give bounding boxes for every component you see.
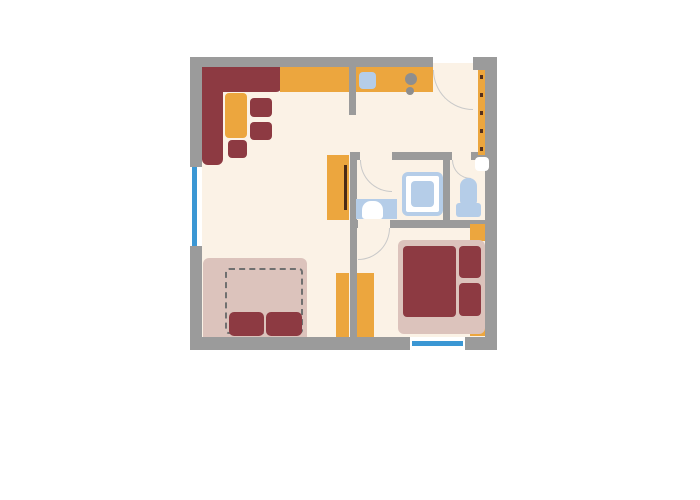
- window-bottom-glass: [412, 341, 463, 346]
- sofa-cushion-2: [266, 312, 302, 336]
- wall-bathroom-wc-divider: [443, 152, 450, 228]
- bed-duvet: [403, 246, 456, 317]
- coat-hook-5: [480, 147, 483, 151]
- wall-bottom-right: [465, 337, 497, 350]
- bed-pillow-2: [459, 283, 481, 316]
- sofa-cushion-1: [229, 312, 264, 336]
- wall-left-lower: [190, 246, 202, 350]
- wall-hall-bathroom: [350, 152, 357, 337]
- window-left-glass: [192, 167, 197, 246]
- wall-right: [485, 57, 497, 350]
- coat-hook-1: [480, 75, 483, 79]
- wc-hand-basin: [475, 157, 489, 171]
- coat-hook-3: [480, 111, 483, 115]
- tv-screen: [344, 165, 347, 210]
- toilet-bowl: [460, 178, 477, 205]
- coat-hook-2: [480, 93, 483, 97]
- vanity-basin: [362, 201, 383, 219]
- wall-kitchen-stub: [349, 67, 356, 115]
- shower-tray: [411, 181, 434, 207]
- wardrobe-living-side: [336, 273, 349, 337]
- wall-bathroom-top-left: [350, 152, 360, 160]
- floor-plan-page: [0, 0, 700, 500]
- stool-2: [250, 122, 272, 140]
- sideboard: [280, 67, 349, 92]
- dining-table: [225, 93, 247, 138]
- bed-pillow-1: [459, 246, 481, 278]
- toilet-cistern: [456, 203, 481, 217]
- stool-1: [250, 98, 272, 117]
- stool-3: [228, 140, 247, 158]
- stove-burner-large: [405, 73, 417, 85]
- corner-bench-side: [202, 67, 223, 165]
- wall-left-upper: [190, 57, 202, 167]
- nightstand-top: [470, 224, 485, 241]
- coat-hook-4: [480, 129, 483, 133]
- wardrobe-bedroom-side: [357, 273, 374, 337]
- wall-bedroom-top-joint: [350, 220, 358, 228]
- stove-burner-small: [406, 87, 414, 95]
- kitchen-sink: [359, 72, 376, 89]
- apartment-floor-plan: [190, 57, 497, 350]
- wall-bottom-left: [190, 337, 410, 350]
